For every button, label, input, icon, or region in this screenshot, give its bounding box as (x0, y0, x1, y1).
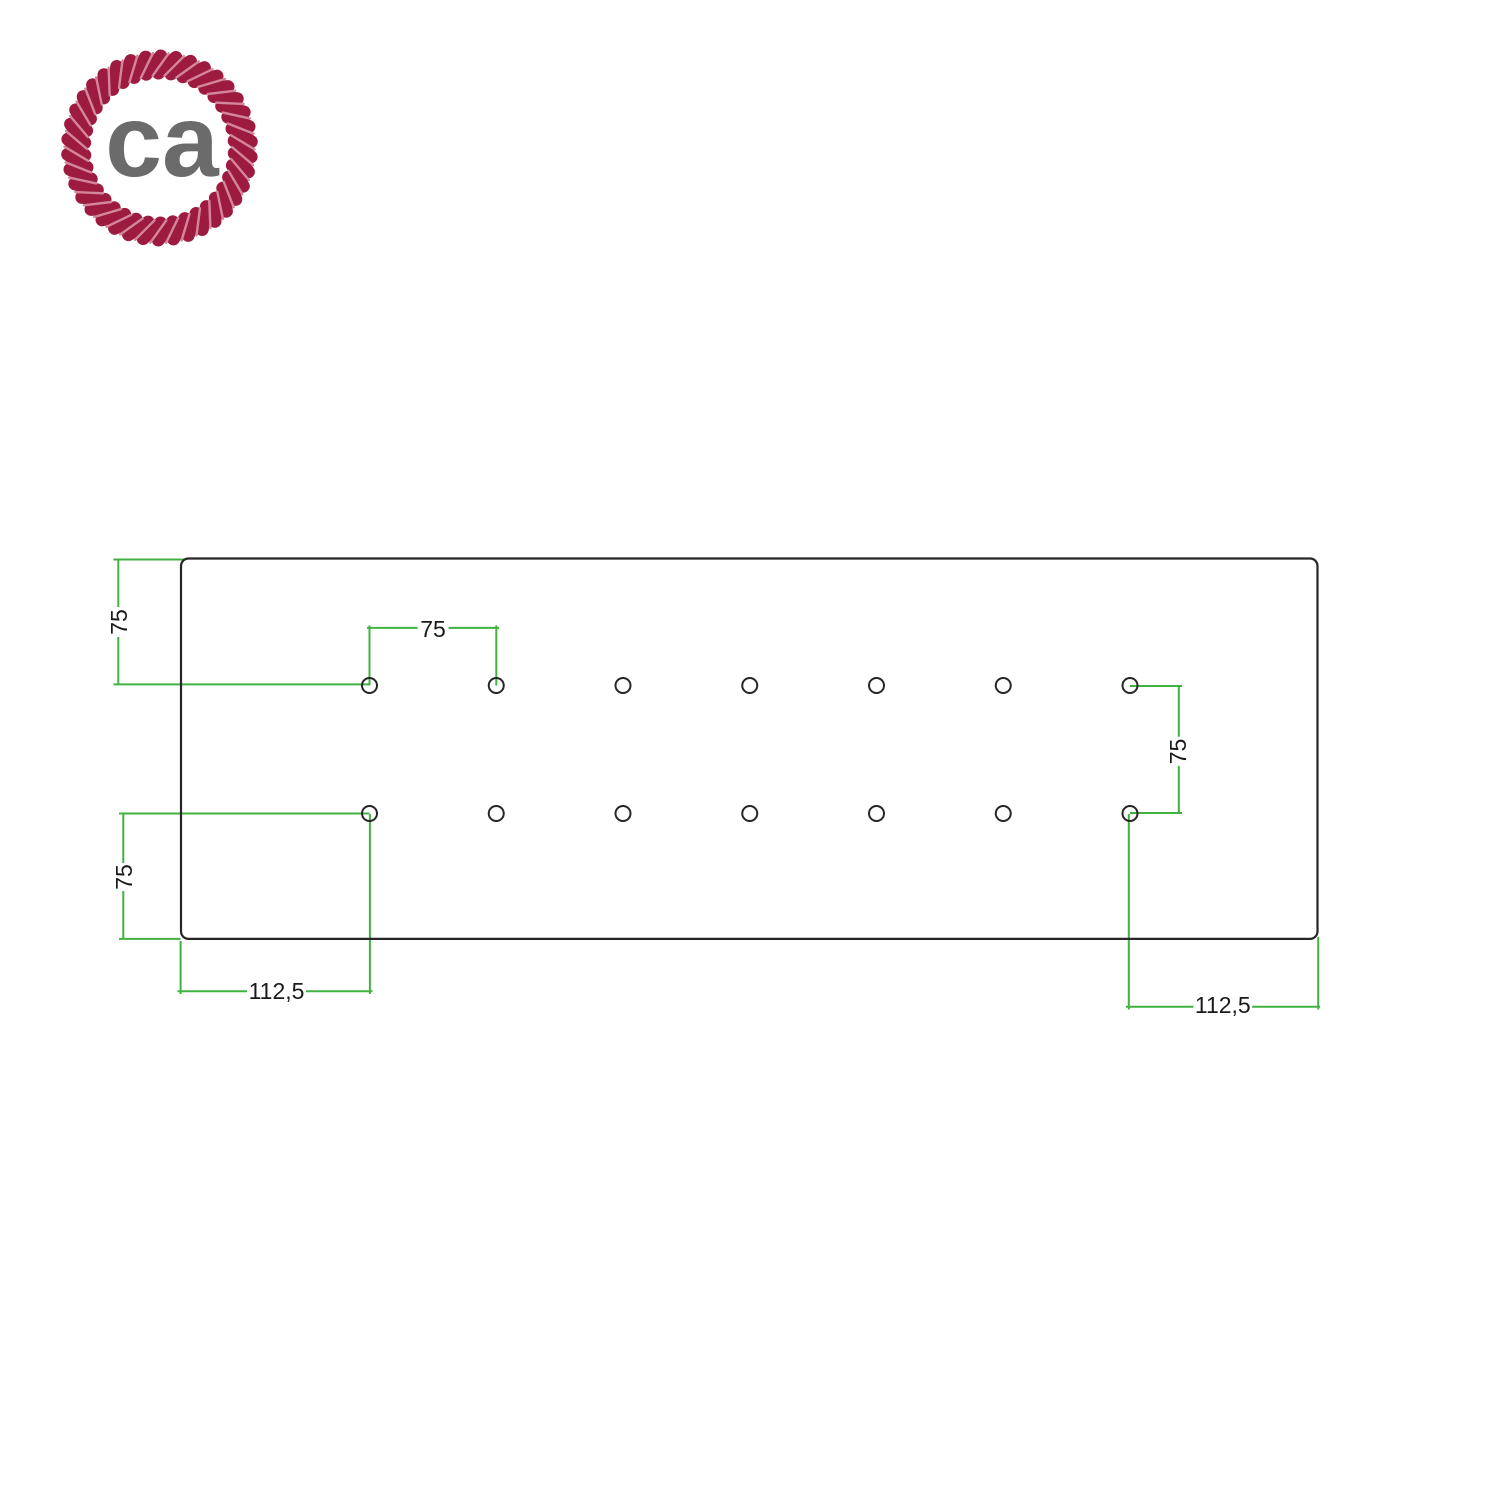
svg-text:112,5: 112,5 (1195, 992, 1251, 1018)
svg-text:75: 75 (111, 864, 137, 890)
svg-text:75: 75 (106, 609, 132, 635)
svg-text:75: 75 (420, 616, 446, 642)
svg-text:112,5: 112,5 (249, 978, 305, 1004)
svg-text:ca: ca (105, 84, 220, 198)
svg-text:75: 75 (1165, 739, 1191, 765)
